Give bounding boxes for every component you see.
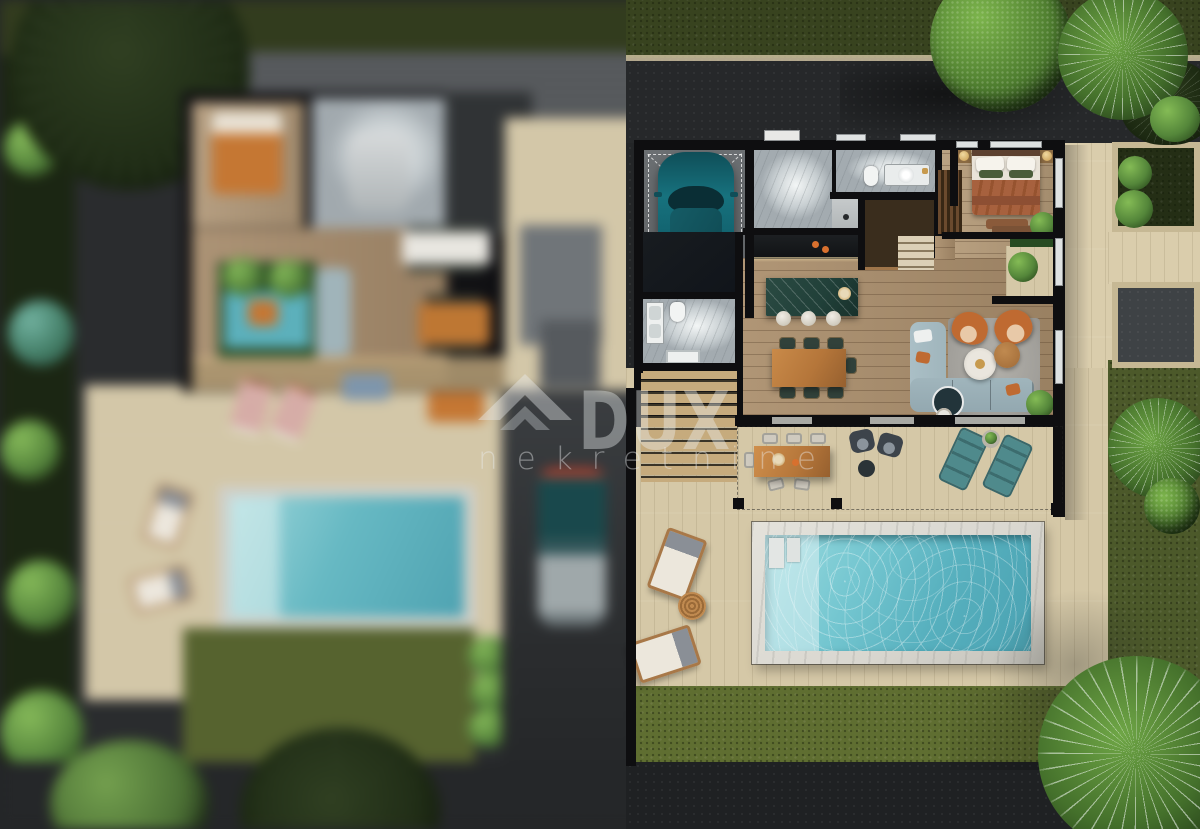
pool-step: [769, 538, 784, 568]
alcove-planter-strip: [1010, 239, 1054, 247]
pergola-post: [733, 498, 744, 509]
outdoor-chair: [793, 478, 810, 491]
kitchen-counter: [745, 234, 863, 259]
corner-bush: [1150, 96, 1200, 142]
porch-sill: [764, 130, 800, 141]
wall-stair-left: [858, 192, 865, 270]
wall-bedroom-left: [950, 148, 958, 206]
sofa-pillow-white: [913, 329, 932, 343]
sofa-pillow-rust: [915, 351, 931, 364]
stair-hall-floor: [935, 236, 955, 260]
sliding-door: [772, 417, 812, 424]
counter-item-orange: [822, 246, 829, 253]
wall-bath-bottom: [634, 363, 741, 371]
window-right: [1055, 238, 1063, 286]
planter-bush: [1118, 156, 1152, 190]
side-table-outdoor-dark: [858, 460, 875, 477]
wall-kitchen-back: [743, 228, 865, 235]
accent-pillow: [979, 170, 1003, 178]
outdoor-plate: [772, 453, 785, 466]
accent-pillow: [1009, 170, 1033, 178]
right-plan: [0, 0, 1200, 829]
wall-bath-right: [735, 232, 743, 371]
outdoor-juice: [792, 459, 799, 466]
counter-item-orange: [812, 241, 819, 248]
window: [956, 141, 978, 148]
planter-bush: [1115, 190, 1153, 228]
stairs-straight: [898, 236, 934, 270]
bedside-lamp: [1042, 151, 1052, 161]
window-right: [1055, 158, 1063, 208]
wash-basin: [898, 167, 914, 183]
sofa-cushion-line: [990, 380, 991, 410]
dining-chair: [845, 357, 857, 374]
outdoor-chair: [810, 433, 826, 444]
site-plan-render: DUX nekretnine: [0, 0, 1200, 829]
shower-drain-dot: [843, 214, 849, 220]
sliding-door: [955, 417, 1025, 424]
window: [900, 134, 936, 141]
wall-stair-top: [830, 192, 935, 199]
dining-chair: [779, 386, 796, 399]
dining-chair: [827, 386, 844, 399]
bed-throw: [972, 196, 1040, 205]
pergola-post: [1051, 503, 1063, 515]
window: [836, 134, 866, 141]
toilet: [864, 166, 878, 186]
utility-room: [643, 232, 741, 296]
lot-divider-wall: [626, 388, 636, 766]
window-right: [1055, 330, 1063, 384]
pool-step: [787, 538, 800, 562]
entry-hall: [752, 150, 832, 234]
house-edge-shadow: [1065, 145, 1089, 520]
bar-stool: [776, 311, 791, 326]
wall-hall-divider: [992, 296, 1065, 304]
teak-side-table: [678, 592, 706, 620]
counter-light-strip: [745, 257, 863, 262]
bath-toilet: [670, 302, 685, 322]
wall-bath-top: [634, 292, 741, 299]
living-plant: [1026, 390, 1054, 418]
dining-chair: [803, 386, 820, 399]
car-mirror: [654, 192, 662, 197]
walkway-band: [1108, 232, 1200, 284]
sliding-door: [870, 417, 914, 424]
wall-left: [634, 140, 643, 373]
bath-tray: [666, 350, 700, 364]
alcove-plant: [1008, 252, 1038, 282]
coffee-table-gold-center: [975, 359, 985, 369]
dining-table: [772, 349, 846, 387]
bath-basin: [649, 324, 661, 338]
outdoor-chair: [786, 433, 802, 444]
island-plate: [838, 287, 851, 300]
bath-basin: [649, 306, 661, 320]
coffee-table-wood: [994, 342, 1020, 368]
garden-bush: [1144, 478, 1200, 534]
paved-pad: [1112, 282, 1200, 368]
vanity-accent: [922, 168, 928, 174]
pergola-post: [831, 498, 842, 509]
street-bottom: [626, 762, 1100, 829]
deck-steps: [641, 370, 737, 482]
outdoor-chair: [762, 433, 778, 444]
bar-stool: [826, 311, 841, 326]
bar-stool: [801, 311, 816, 326]
car-mirror: [730, 192, 738, 197]
window: [990, 141, 1042, 148]
plant-on-table: [985, 432, 997, 444]
wall-bedroom-bottom: [942, 232, 1065, 239]
bedside-lamp: [959, 151, 969, 161]
